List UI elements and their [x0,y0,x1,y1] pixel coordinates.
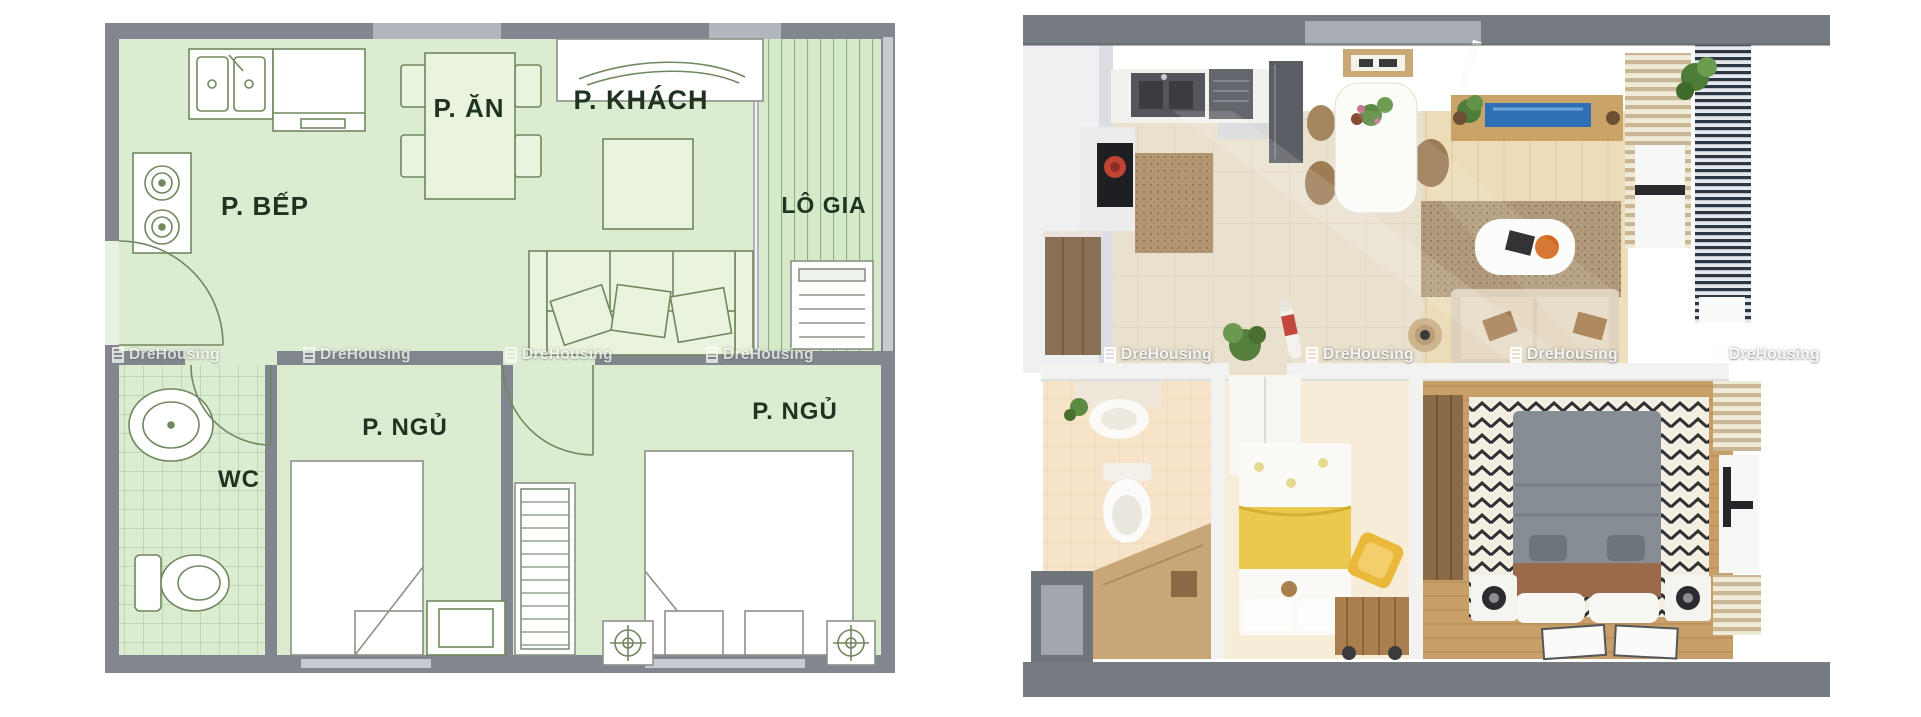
floor-mat [1614,625,1677,658]
loggia-washer [791,261,873,349]
room-label-bedroom1: P. NGỦ [362,412,448,441]
room-label-kitchen: P. BẾP [221,191,309,221]
kitchen-stove [133,153,191,253]
pillow [1589,593,1659,623]
middle-wall [1041,363,1729,382]
bedroom1-nightstand [427,601,505,655]
window-bottom-left [301,659,431,668]
room-label-loggia: LÔ GIA [781,191,866,218]
room-label-living: P. KHÁCH [573,84,708,115]
pillow [1515,593,1585,623]
wc-sink [129,389,213,461]
sofa [529,251,753,355]
pillow [1243,599,1293,631]
loggia-railing [883,37,893,351]
room-label-dining: P. ĂN [434,93,505,123]
ceiling-lamp-symbol [827,621,875,665]
window-top-left [373,23,501,39]
floorplan-2d-drawing: P. BẾP P. ĂN P. KHÁCH LÔ GIA WC P. NGỦ P… [105,15,905,690]
brown-blanket [1513,563,1661,597]
bedroom2-wardrobe [1423,395,1463,580]
ceiling-lamp-symbol [603,621,653,665]
entry-wall-segment [1305,21,1481,45]
room-label-bedroom2: P. NGỦ [752,396,838,425]
dining-chair [1307,105,1335,141]
floorplan-3d-panel [1023,15,1830,697]
laundry-door [1045,237,1101,355]
inner-wall [1409,367,1423,659]
teddy-bear [1281,581,1297,597]
floorplan-2d-panel: P. BẾP P. ĂN P. KHÁCH LÔ GIA WC P. NGỦ P… [105,15,905,690]
bedroom2-3d [1423,381,1761,659]
floor-plan-image: P. BẾP P. ĂN P. KHÁCH LÔ GIA WC P. NGỦ P… [0,0,1921,717]
tv-screen [1485,103,1591,127]
window-bottom-right [645,659,805,668]
bedroom2-blinds [1713,381,1761,451]
inner-wall [1211,367,1225,659]
living-window [1635,145,1685,248]
kitchen-sink [189,49,273,119]
kitchen-counter [273,49,365,131]
floor-mat [1542,625,1606,659]
bedroom2-bed [645,451,853,655]
living-table [603,139,693,229]
bedroom1-3d [1225,375,1409,660]
wardrobe [515,483,575,655]
room-label-wc: WC [218,466,260,493]
wc-toilet [135,555,229,611]
floorplan-3d-render [1023,15,1830,697]
bedroom1-bed [291,461,423,655]
window-top-right [709,23,781,39]
entry-opening [105,241,119,345]
